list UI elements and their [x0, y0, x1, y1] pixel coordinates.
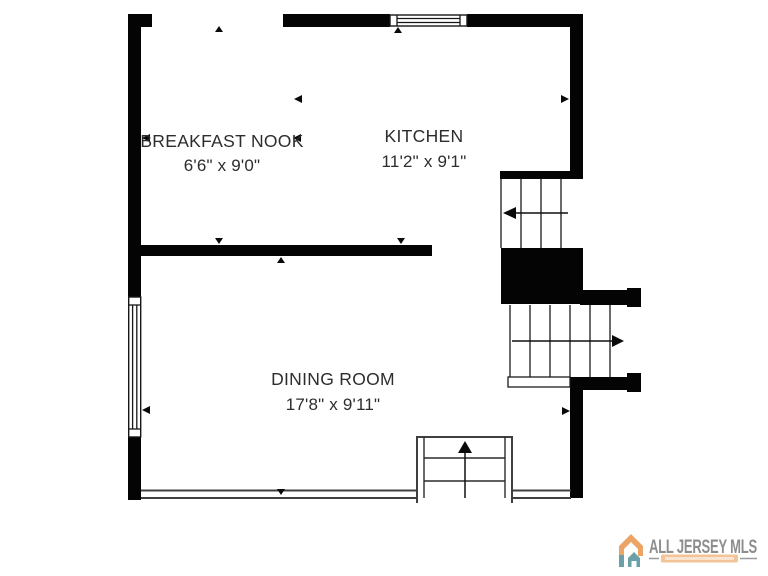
marker-triangle — [397, 238, 405, 244]
marker-triangle — [215, 26, 223, 32]
wall-segment-right-kitchen — [570, 14, 583, 178]
wall-stair-top — [500, 171, 583, 179]
marker-triangle — [294, 95, 302, 103]
stair-ledge — [508, 377, 570, 387]
top-window — [390, 15, 467, 26]
house-roof-shape — [619, 534, 643, 556]
stair-direction-arrow — [458, 441, 472, 453]
room-dims-kitchen: 11'2" x 9'1" — [382, 152, 467, 171]
floor-plan-page: BREAKFAST NOOK 6'6" x 9'0" KITCHEN 11'2"… — [0, 0, 768, 576]
wall-stair-ext-bottom — [570, 377, 627, 390]
marker-triangle — [277, 489, 285, 495]
marker-triangle — [215, 238, 223, 244]
wall-divider — [141, 245, 432, 256]
house-wall-shape — [619, 555, 624, 567]
bottom-wall — [141, 491, 571, 499]
interior-walls — [141, 171, 641, 392]
room-dims-breakfast-nook: 6'6" x 9'0" — [184, 156, 261, 175]
wall-segment-left-lower — [128, 437, 141, 500]
entry-steps — [417, 437, 512, 503]
left-window — [129, 297, 141, 437]
marker-triangle — [277, 257, 285, 263]
marker-triangle — [394, 27, 402, 33]
mls-logo: ALL JERSEY MLS — [619, 534, 757, 567]
wall-stair-ext-top — [580, 290, 627, 305]
stair-direction-arrow — [612, 335, 624, 347]
lower-staircase — [508, 305, 624, 387]
upper-staircase — [501, 179, 568, 248]
wall-segment-left-upper — [128, 14, 141, 297]
wall-stair-landing — [501, 248, 583, 304]
wall-stair-ext-top-cap — [627, 288, 641, 307]
wall-stair-ext-bottom-cap — [627, 373, 641, 392]
marker-triangle — [562, 407, 570, 415]
wall-segment-right-dining — [570, 390, 583, 498]
house-icon — [619, 534, 643, 567]
wall-segment — [283, 14, 390, 27]
room-label-dining-room: DINING ROOM — [271, 369, 395, 389]
floor-plan-drawing: BREAKFAST NOOK 6'6" x 9'0" KITCHEN 11'2"… — [0, 0, 768, 576]
room-dims-dining-room: 17'8" x 9'11" — [286, 395, 381, 414]
room-label-kitchen: KITCHEN — [385, 126, 464, 146]
stair-direction-arrow — [503, 207, 516, 219]
room-label-breakfast-nook: BREAKFAST NOOK — [140, 131, 303, 151]
marker-triangle — [561, 95, 569, 103]
marker-triangle — [142, 406, 150, 414]
wall-segment — [467, 14, 583, 27]
room-labels: BREAKFAST NOOK 6'6" x 9'0" KITCHEN 11'2"… — [140, 126, 466, 414]
